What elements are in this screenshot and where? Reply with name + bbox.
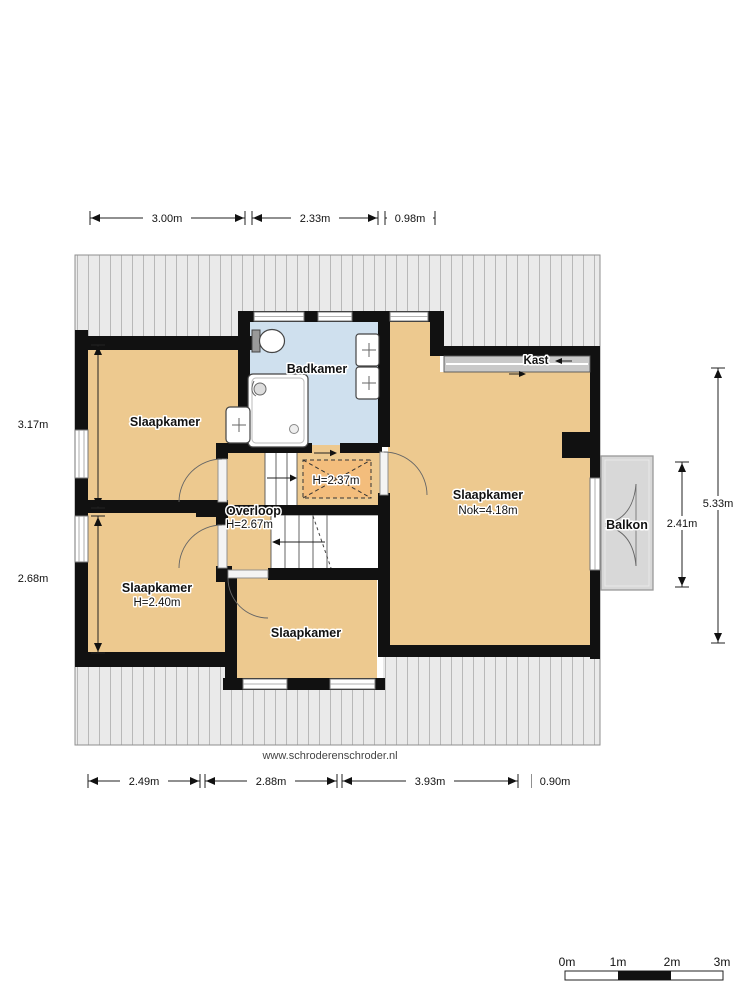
- label-slaapkamer-main-height: Nok=4.18m: [458, 505, 517, 517]
- toilet-icon: [252, 330, 285, 353]
- dim-top-3: 0.98m: [395, 213, 426, 225]
- shower-icon: [248, 374, 308, 447]
- floorplan-page: Slaapkamer Badkamer Slaapkamer Nok=4.18m…: [0, 0, 750, 1000]
- sink-icon: [356, 334, 379, 399]
- scale-bar: 0m 1m 2m 3m: [559, 955, 731, 980]
- label-slaapkamer-sw-height: H=2.40m: [134, 597, 181, 609]
- dim-left-1: 3.17m: [18, 419, 49, 431]
- bedroom-sink-icon: [226, 407, 250, 443]
- dim-top-1: 3.00m: [152, 213, 183, 225]
- dim-bottom-3: 3.93m: [415, 776, 446, 788]
- scale-label-0: 0m: [559, 955, 576, 969]
- label-slaapkamer-s: Slaapkamer: [271, 626, 341, 640]
- scale-label-3: 3m: [714, 955, 731, 969]
- scale-label-1: 1m: [610, 955, 627, 969]
- dim-bottom-2: 2.88m: [256, 776, 287, 788]
- label-overloop-height: H=2.67m: [226, 519, 273, 531]
- dim-bottom-1: 2.49m: [129, 776, 160, 788]
- dim-top-2: 2.33m: [300, 213, 331, 225]
- dimension-right: 5.33m 2.41m: [658, 368, 742, 643]
- label-slaapkamer-nw: Slaapkamer: [130, 415, 200, 429]
- dim-bottom-4: 0.90m: [540, 776, 571, 788]
- dim-right-1: 5.33m: [703, 498, 734, 510]
- stairs-down-icon: [271, 515, 379, 569]
- label-slaapkamer-sw: Slaapkamer: [122, 581, 192, 595]
- dim-left-2: 2.68m: [18, 573, 49, 585]
- watermark-url: www.schroderenschroder.nl: [261, 750, 397, 762]
- label-badkamer: Badkamer: [287, 362, 348, 376]
- label-overloop: Overloop: [226, 504, 281, 518]
- dimension-top: 3.00m 2.33m 0.98m: [90, 211, 435, 225]
- chimney: [562, 432, 590, 458]
- dimension-bottom: 2.49m 2.88m 3.93m 0.90m: [88, 774, 578, 788]
- scale-label-2: 2m: [664, 955, 681, 969]
- stairs-up-icon: [265, 452, 297, 506]
- label-balkon: Balkon: [606, 518, 648, 532]
- label-low-headroom: H=2.37m: [313, 475, 360, 487]
- dim-right-2: 2.41m: [667, 518, 698, 530]
- label-kast: Kast: [524, 355, 549, 367]
- label-slaapkamer-main: Slaapkamer: [453, 488, 523, 502]
- floorplan-canvas: Slaapkamer Badkamer Slaapkamer Nok=4.18m…: [0, 0, 750, 1000]
